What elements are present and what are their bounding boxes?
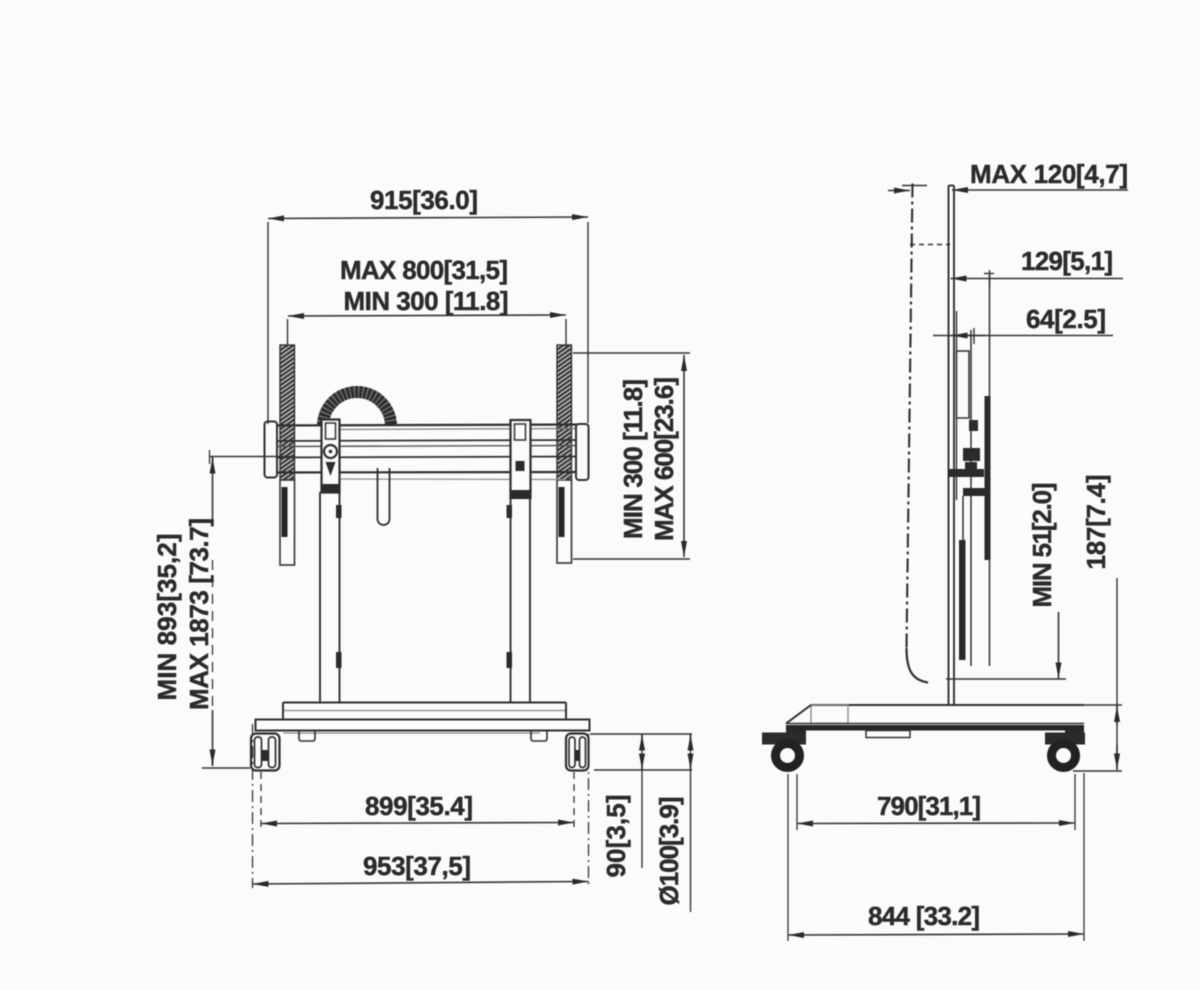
svg-text:844 [33.2]: 844 [33.2] (868, 901, 980, 931)
svg-text:953[37,5]: 953[37,5] (363, 851, 471, 881)
svg-text:790[31,1]: 790[31,1] (877, 791, 981, 821)
svg-text:MAX 600[23.6]: MAX 600[23.6] (649, 377, 679, 541)
svg-text:915[36.0]: 915[36.0] (370, 185, 478, 215)
svg-text:899[35.4]: 899[35.4] (365, 791, 473, 821)
svg-text:MAX 800[31,5]: MAX 800[31,5] (340, 255, 508, 285)
svg-text:MAX 1873 [73.7]: MAX 1873 [73.7] (184, 518, 214, 710)
svg-text:MIN 300 [11.8]: MIN 300 [11.8] (344, 286, 509, 316)
svg-text:Ø100[3.9]: Ø100[3.9] (654, 797, 684, 906)
svg-text:MAX 120[4,7]: MAX 120[4,7] (970, 159, 1128, 189)
svg-text:MIN 893[35,2]: MIN 893[35,2] (152, 534, 182, 701)
svg-text:64[2.5]: 64[2.5] (1026, 304, 1106, 334)
svg-text:187[7.4]: 187[7.4] (1081, 475, 1111, 570)
svg-text:MIN 300 [11.8]: MIN 300 [11.8] (618, 379, 648, 539)
svg-text:129[5,1]: 129[5,1] (1021, 246, 1113, 276)
svg-text:90[3,5]: 90[3,5] (601, 795, 631, 878)
svg-text:MIN 51[2.0]: MIN 51[2.0] (1027, 483, 1057, 608)
